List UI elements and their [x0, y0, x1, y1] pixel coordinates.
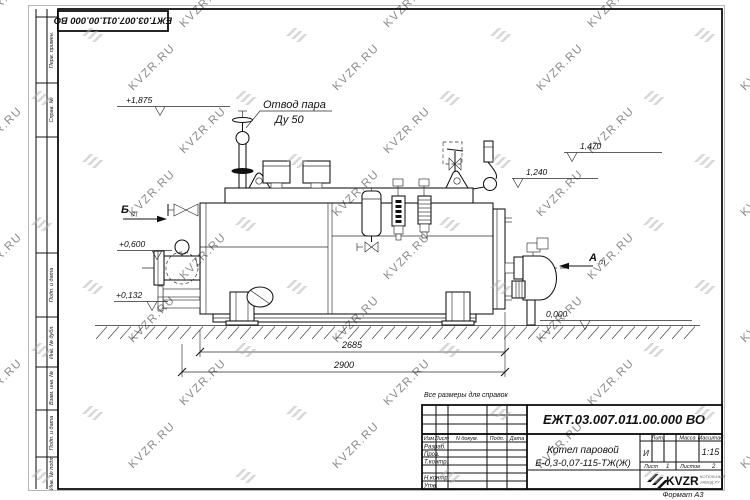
col-list: Лист — [434, 436, 450, 442]
level-mark-1470: 1,470 — [564, 141, 662, 162]
mass-label: Масса — [679, 436, 695, 442]
front-valve — [168, 204, 198, 216]
flexible-hose-device — [473, 141, 497, 191]
watermark-text: KVZR.RU — [127, 42, 178, 93]
kvzr-logo-text: KVZR — [666, 474, 699, 488]
hatch-line — [504, 327, 515, 340]
margin-label-inv-podl: Инв. № подл. — [49, 456, 55, 490]
watermark-icon — [694, 154, 716, 168]
kvzr-logo-caption1: КОТЕЛЬНЫЙ — [700, 474, 725, 479]
hatch-line — [468, 327, 479, 340]
top-doc-number: ЕЖТ.03.007.011.00.000 ВО — [53, 15, 172, 26]
watermark-text: KVZR.RU — [586, 0, 637, 30]
watermark-icon — [694, 280, 716, 294]
hatch-line — [312, 327, 323, 340]
hatch-line — [588, 327, 599, 340]
hatch-line — [96, 327, 107, 340]
hatch-line — [276, 327, 287, 340]
hatch-line — [600, 327, 611, 340]
watermark-text: KVZR.RU — [331, 42, 382, 93]
watermark-icon — [439, 91, 461, 105]
watermark-icon — [235, 469, 257, 483]
watermark-text: KVZR.RU — [178, 105, 229, 156]
svg-text:+0,600: +0,600 — [119, 239, 146, 249]
hatch-line — [192, 327, 203, 340]
watermark-text: KVZR.RU — [739, 42, 750, 93]
hatch-line — [408, 327, 419, 340]
watermark-text: KVZR.RU — [127, 420, 178, 471]
watermark-icon — [439, 343, 461, 357]
watermark-icon — [82, 280, 104, 294]
hatch-line — [564, 327, 575, 340]
hatch-line — [108, 327, 119, 340]
hatch-line — [180, 327, 191, 340]
sheet-label: Лист — [643, 464, 659, 470]
hatch-line — [360, 327, 371, 340]
watermark-text: KVZR.RU — [0, 105, 25, 156]
hatch-line — [240, 327, 251, 340]
hatch-line — [168, 327, 179, 340]
col-izm: Изм — [424, 436, 434, 442]
watermark-icon — [82, 154, 104, 168]
hatch-line — [252, 327, 263, 340]
hatch-line — [492, 327, 503, 340]
hatch-line — [216, 327, 227, 340]
hatch-line — [516, 327, 527, 340]
hatch-line — [228, 327, 239, 340]
watermark-icon — [643, 217, 665, 231]
ground-hatch — [96, 327, 695, 340]
scale-label: Масштаб — [698, 436, 725, 442]
watermark-text: KVZR.RU — [586, 357, 637, 408]
hatch-line — [624, 327, 635, 340]
watermark-icon — [286, 28, 308, 42]
watermark-text: KVZR.RU — [178, 357, 229, 408]
watermark-text: KVZR.RU — [535, 42, 586, 93]
watermark-icon — [235, 343, 257, 357]
svg-text:А: А — [588, 252, 597, 264]
watermark-text: KVZR.RU — [739, 420, 750, 471]
row-razrab: Разраб. — [424, 445, 446, 451]
margin-label-podp1: Подп. и дата — [49, 268, 55, 302]
drawing-page: Перв. примен. Справ. № Подп. и дата Инв.… — [0, 0, 750, 500]
row-utv: Утв. — [423, 484, 438, 490]
hatch-line — [396, 327, 407, 340]
hatch-line — [636, 327, 647, 340]
margin-label-sprav: Справ. № — [49, 97, 55, 122]
title-block: Изм Лист N докум. Подп. Дата Разраб. Про… — [422, 405, 725, 490]
svg-text:2900: 2900 — [333, 360, 354, 370]
hatch-line — [684, 327, 695, 340]
hatch-line — [156, 327, 167, 340]
watermark-icon — [82, 406, 104, 420]
reference-note: Все размеры для справок — [424, 391, 509, 399]
watermark-icon — [694, 28, 716, 42]
watermark-icon — [643, 343, 665, 357]
watermark-icon — [286, 406, 308, 420]
kvzr-logo-caption2: ЗАВОД.РУ — [700, 480, 720, 485]
hatch-line — [444, 327, 455, 340]
callout-line1: Отвод пара — [263, 99, 326, 111]
hatch-line — [372, 327, 383, 340]
watermark-text: KVZR.RU — [0, 357, 25, 408]
watermark-text: KVZR.RU — [739, 294, 750, 345]
watermark-text: KVZR.RU — [331, 420, 382, 471]
sheets-label: Листов — [679, 464, 700, 470]
watermark-text: KVZR.RU — [382, 357, 433, 408]
margin-label-podp2: Подп. и дата — [49, 416, 55, 450]
hatch-line — [420, 327, 431, 340]
watermark-text: KVZR.RU — [178, 0, 229, 30]
margin-label-perv: Перв. примен. — [49, 32, 55, 69]
drawing-sheet: Перв. примен. Справ. № Подп. и дата Инв.… — [0, 0, 750, 500]
watermark-text: KVZR.RU — [382, 105, 433, 156]
watermark-icon — [235, 91, 257, 105]
callout-line2: Ду 50 — [273, 114, 305, 126]
lifting-lug-right — [446, 171, 468, 188]
lit-value: И — [643, 449, 649, 458]
watermark-icon — [643, 91, 665, 105]
row-tkontr: Т.контр. — [424, 460, 448, 466]
lit-label: Лит. — [651, 436, 665, 442]
svg-text:2685: 2685 — [341, 340, 363, 350]
hatch-line — [480, 327, 491, 340]
svg-text:+0,132: +0,132 — [116, 290, 143, 300]
watermark-text: KVZR.RU — [739, 168, 750, 219]
watermark-text: KVZR.RU — [0, 231, 25, 282]
hatch-line — [384, 327, 395, 340]
hatch-line — [672, 327, 683, 340]
hatch-line — [432, 327, 443, 340]
hatch-line — [204, 327, 215, 340]
col-podp: Подп. — [490, 436, 505, 442]
scale-value: 1:15 — [702, 447, 721, 457]
hatch-line — [660, 327, 671, 340]
hatch-line — [264, 327, 275, 340]
watermark-text: KVZR.RU — [382, 0, 433, 30]
hatch-line — [648, 327, 659, 340]
sheet-value: 1 — [666, 464, 669, 470]
col-ndoc: N докум. — [456, 436, 478, 442]
level-mark-1240: 1,240 — [512, 167, 598, 188]
margin-label-vzam: Взам. инв. № — [49, 371, 55, 405]
rear-valve — [443, 142, 463, 172]
hatch-line — [288, 327, 299, 340]
sheets-value: 2 — [711, 464, 716, 470]
watermark-icon — [490, 28, 512, 42]
margin-label-inv-dubl: Инв. № дубл. — [49, 325, 55, 359]
hatch-line — [612, 327, 623, 340]
doc-number: ЕЖТ.03.007.011.00.000 ВО — [543, 412, 705, 427]
row-prov: Пров. — [424, 452, 440, 458]
hatch-covers — [263, 161, 330, 188]
svg-text:+1,875: +1,875 — [126, 95, 153, 105]
watermark-icon — [31, 217, 53, 231]
watermark-text: KVZR.RU — [535, 294, 586, 345]
svg-text:1,240: 1,240 — [526, 167, 548, 177]
col-data: Дата — [509, 436, 525, 442]
watermark-text: KVZR.RU — [0, 0, 25, 30]
hatch-line — [300, 327, 311, 340]
format-label: Формат А3 — [662, 490, 704, 499]
hatch-line — [456, 327, 467, 340]
watermark-text: KVZR.RU — [127, 168, 178, 219]
watermark-text: KVZR.RU — [586, 105, 637, 156]
